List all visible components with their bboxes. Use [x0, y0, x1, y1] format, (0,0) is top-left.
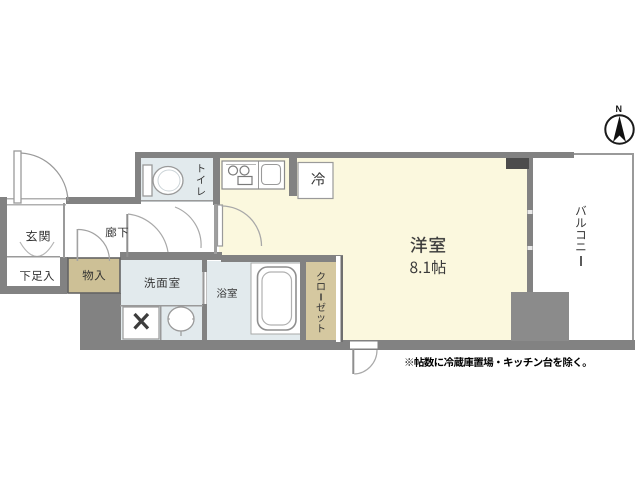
svg-text:N: N	[615, 104, 622, 114]
